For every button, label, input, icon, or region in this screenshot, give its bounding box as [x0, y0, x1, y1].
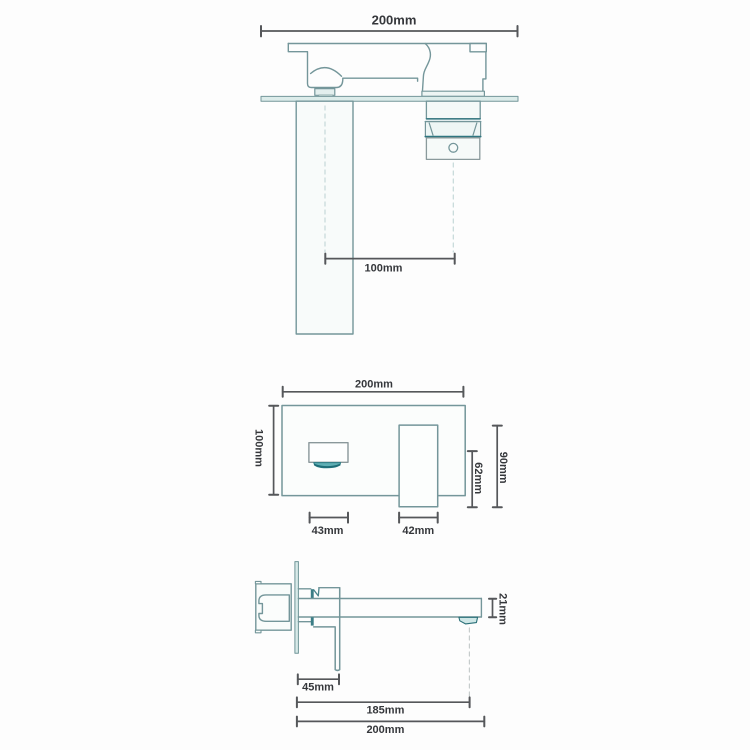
svg-text:200mm: 200mm: [355, 378, 393, 390]
svg-text:185mm: 185mm: [366, 704, 404, 716]
svg-text:42mm: 42mm: [402, 525, 434, 537]
svg-text:21mm: 21mm: [496, 593, 508, 625]
svg-text:100mm: 100mm: [253, 429, 265, 467]
svg-text:90mm: 90mm: [497, 452, 509, 484]
svg-text:45mm: 45mm: [302, 681, 334, 693]
svg-text:200mm: 200mm: [372, 13, 417, 28]
svg-text:200mm: 200mm: [366, 724, 404, 736]
svg-text:100mm: 100mm: [365, 262, 403, 274]
svg-text:62mm: 62mm: [472, 462, 484, 494]
svg-text:43mm: 43mm: [312, 525, 344, 537]
